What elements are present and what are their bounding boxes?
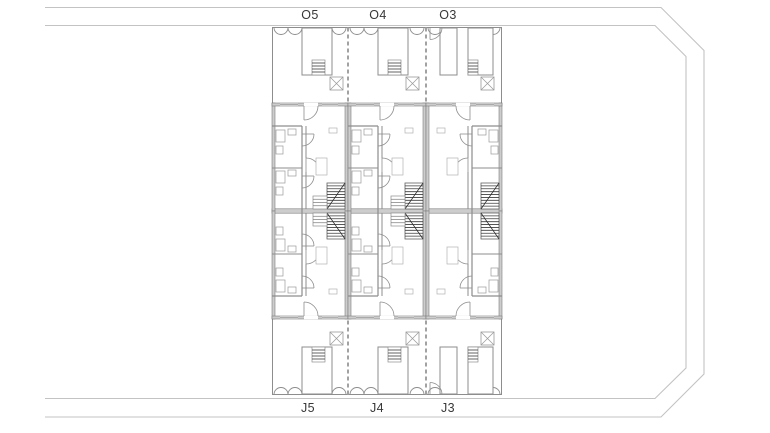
furniture (392, 158, 403, 175)
yard-steps (468, 347, 478, 362)
furniture (405, 289, 413, 294)
floorplan-page: O5 O4 O3 J5 J4 J3 (0, 0, 770, 433)
bath-fixture (288, 246, 296, 252)
door-swing-arc (460, 276, 472, 288)
front-door-opening (380, 316, 394, 320)
yard-steps (388, 60, 401, 75)
unit-lower-half (426, 211, 502, 395)
bath-fixture (288, 170, 296, 176)
front-door-opening (456, 103, 470, 107)
yard-steps (312, 60, 325, 75)
gate-swing-arc (274, 388, 288, 395)
unit-upper-half (272, 28, 348, 212)
bath-fixture (489, 280, 498, 292)
gate-swing-arc (364, 28, 378, 35)
gate-swing-arc (364, 388, 378, 395)
gate-swing-arc (332, 28, 346, 35)
side-wall (426, 211, 429, 319)
townhouse-floorplan (272, 28, 502, 395)
bath-fixture (364, 246, 372, 252)
bath-fixture (478, 287, 486, 293)
unit-upper-half (348, 28, 426, 212)
door-swing-arc (456, 302, 470, 316)
planter-rect (440, 28, 457, 75)
dwelling-interior (348, 211, 426, 319)
bath-fixture (352, 239, 361, 251)
yard-steps (312, 347, 325, 362)
plot-label-top-1: O5 (301, 8, 318, 22)
door-swing-arc (302, 134, 314, 146)
front-yard (348, 319, 426, 395)
door-swing-arc (378, 276, 390, 288)
unit-lower-half (348, 211, 426, 395)
front-yard (426, 319, 502, 395)
dwelling-interior (272, 103, 348, 211)
door-swing-arc (380, 302, 394, 316)
planter-rect (440, 347, 457, 394)
dwelling-interior (426, 211, 502, 319)
door-swing-arc (304, 302, 318, 316)
bath-fixture (352, 268, 359, 276)
furniture (437, 128, 445, 133)
unit-lower-half (272, 211, 348, 395)
furniture (316, 247, 327, 264)
front-door-opening (304, 103, 318, 107)
bath-fixture (288, 287, 296, 293)
plot-label-bottom-3: J3 (441, 401, 455, 415)
bath-fixture (352, 171, 361, 183)
door-swing-arc (302, 234, 314, 246)
front-door-opening (380, 103, 394, 107)
front-door-opening (456, 316, 470, 320)
plot-label-top-2: O4 (369, 8, 386, 22)
bath-fixture (288, 129, 296, 135)
gate-swing-arc (410, 388, 424, 395)
floorplan-canvas: O5 O4 O3 J5 J4 J3 (0, 0, 770, 433)
furniture (447, 247, 458, 264)
door-swing-arc (378, 234, 390, 246)
furniture (329, 128, 337, 133)
bath-fixture (352, 130, 361, 142)
bath-fixture (352, 227, 359, 235)
front-yard (272, 28, 348, 104)
bath-fixture (276, 268, 283, 276)
bath-fixture (364, 170, 372, 176)
bath-fixture (276, 239, 285, 251)
door-swing-arc (304, 106, 318, 120)
bath-fixture (352, 280, 361, 292)
yard-steps (388, 347, 401, 362)
front-yard (348, 28, 426, 104)
dwelling-interior (348, 103, 426, 211)
bath-fixture (276, 280, 285, 292)
gate-swing-arc (288, 388, 302, 395)
bath-fixture (276, 227, 283, 235)
dwelling-interior (272, 211, 348, 319)
front-door-opening (304, 316, 318, 320)
bath-fixture (276, 146, 283, 154)
dwelling-interior (426, 103, 502, 211)
bath-fixture (276, 187, 283, 195)
door-swing-arc (456, 106, 470, 120)
gate-swing-arc (332, 388, 346, 395)
gate-swing-arc (410, 28, 424, 35)
bath-fixture (491, 268, 498, 276)
door-swing-arc (302, 176, 314, 188)
bath-fixture (489, 130, 498, 142)
side-wall (345, 103, 348, 211)
bath-fixture (276, 171, 285, 183)
gate-swing-arc (350, 28, 364, 35)
side-wall (272, 211, 275, 319)
furniture (405, 128, 413, 133)
side-wall (348, 103, 351, 211)
side-wall (348, 211, 351, 319)
door-swing-arc (378, 176, 390, 188)
side-wall (423, 103, 426, 211)
front-yard (426, 28, 502, 104)
unit-upper-half (426, 28, 502, 212)
bath-fixture (364, 129, 372, 135)
side-wall (426, 103, 429, 211)
yard-steps (468, 60, 478, 75)
side-wall (272, 103, 275, 211)
furniture (392, 247, 403, 264)
plot-label-bottom-1: J5 (301, 401, 315, 415)
side-wall (499, 103, 502, 211)
furniture (316, 158, 327, 175)
bath-fixture (491, 146, 498, 154)
bath-fixture (276, 130, 285, 142)
front-yard (272, 319, 348, 395)
door-swing-arc (460, 134, 472, 146)
gate-swing-arc (274, 28, 288, 35)
door-swing-arc (378, 134, 390, 146)
side-wall (423, 211, 426, 319)
door-swing-arc (380, 106, 394, 120)
bath-fixture (352, 187, 359, 195)
side-wall (499, 211, 502, 319)
furniture (329, 289, 337, 294)
bath-fixture (364, 287, 372, 293)
furniture (447, 158, 458, 175)
bath-fixture (478, 129, 486, 135)
furniture (437, 289, 445, 294)
gate-swing-arc (350, 388, 364, 395)
central-spine-wall (272, 209, 502, 213)
bath-fixture (352, 146, 359, 154)
plot-label-top-3: O3 (439, 8, 456, 22)
side-wall (345, 211, 348, 319)
gate-swing-arc (288, 28, 302, 35)
plot-label-bottom-2: J4 (370, 401, 384, 415)
door-swing-arc (302, 276, 314, 288)
